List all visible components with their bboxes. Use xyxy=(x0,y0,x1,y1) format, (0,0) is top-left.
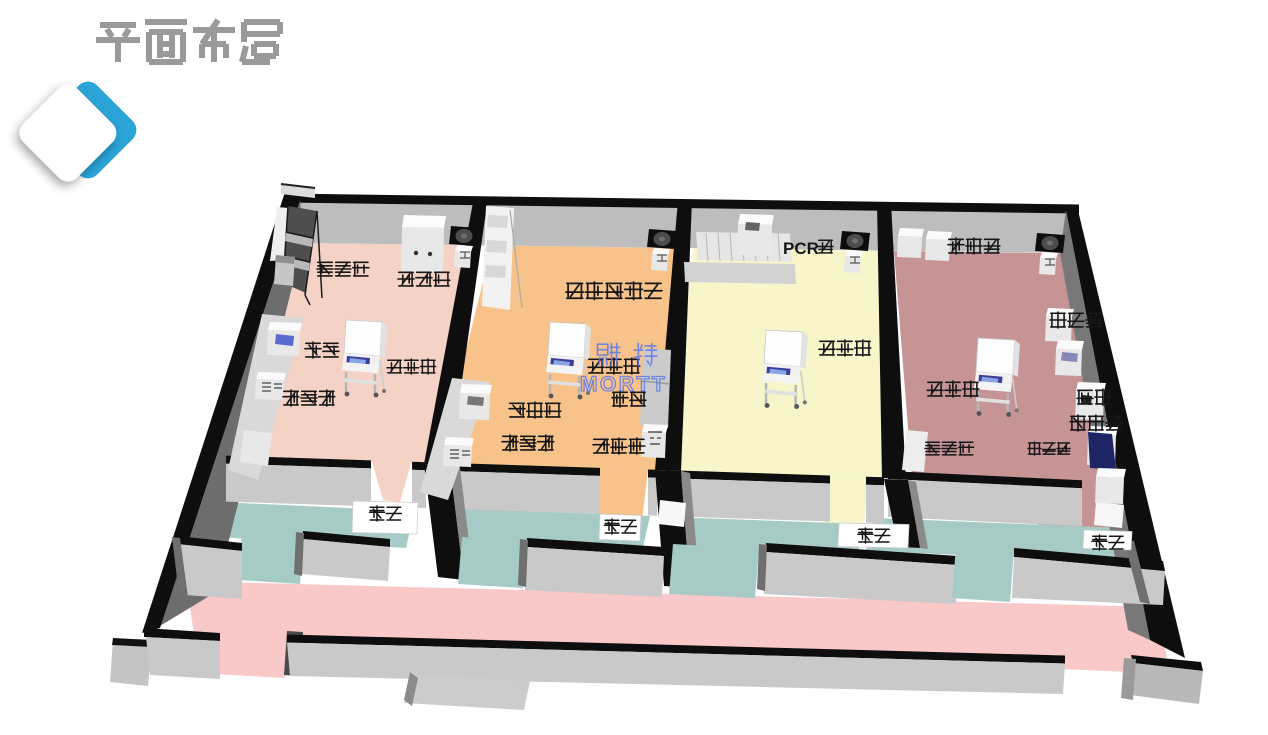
svg-text:PCR: PCR xyxy=(783,239,819,258)
svg-text:MORTT: MORTT xyxy=(580,373,667,396)
